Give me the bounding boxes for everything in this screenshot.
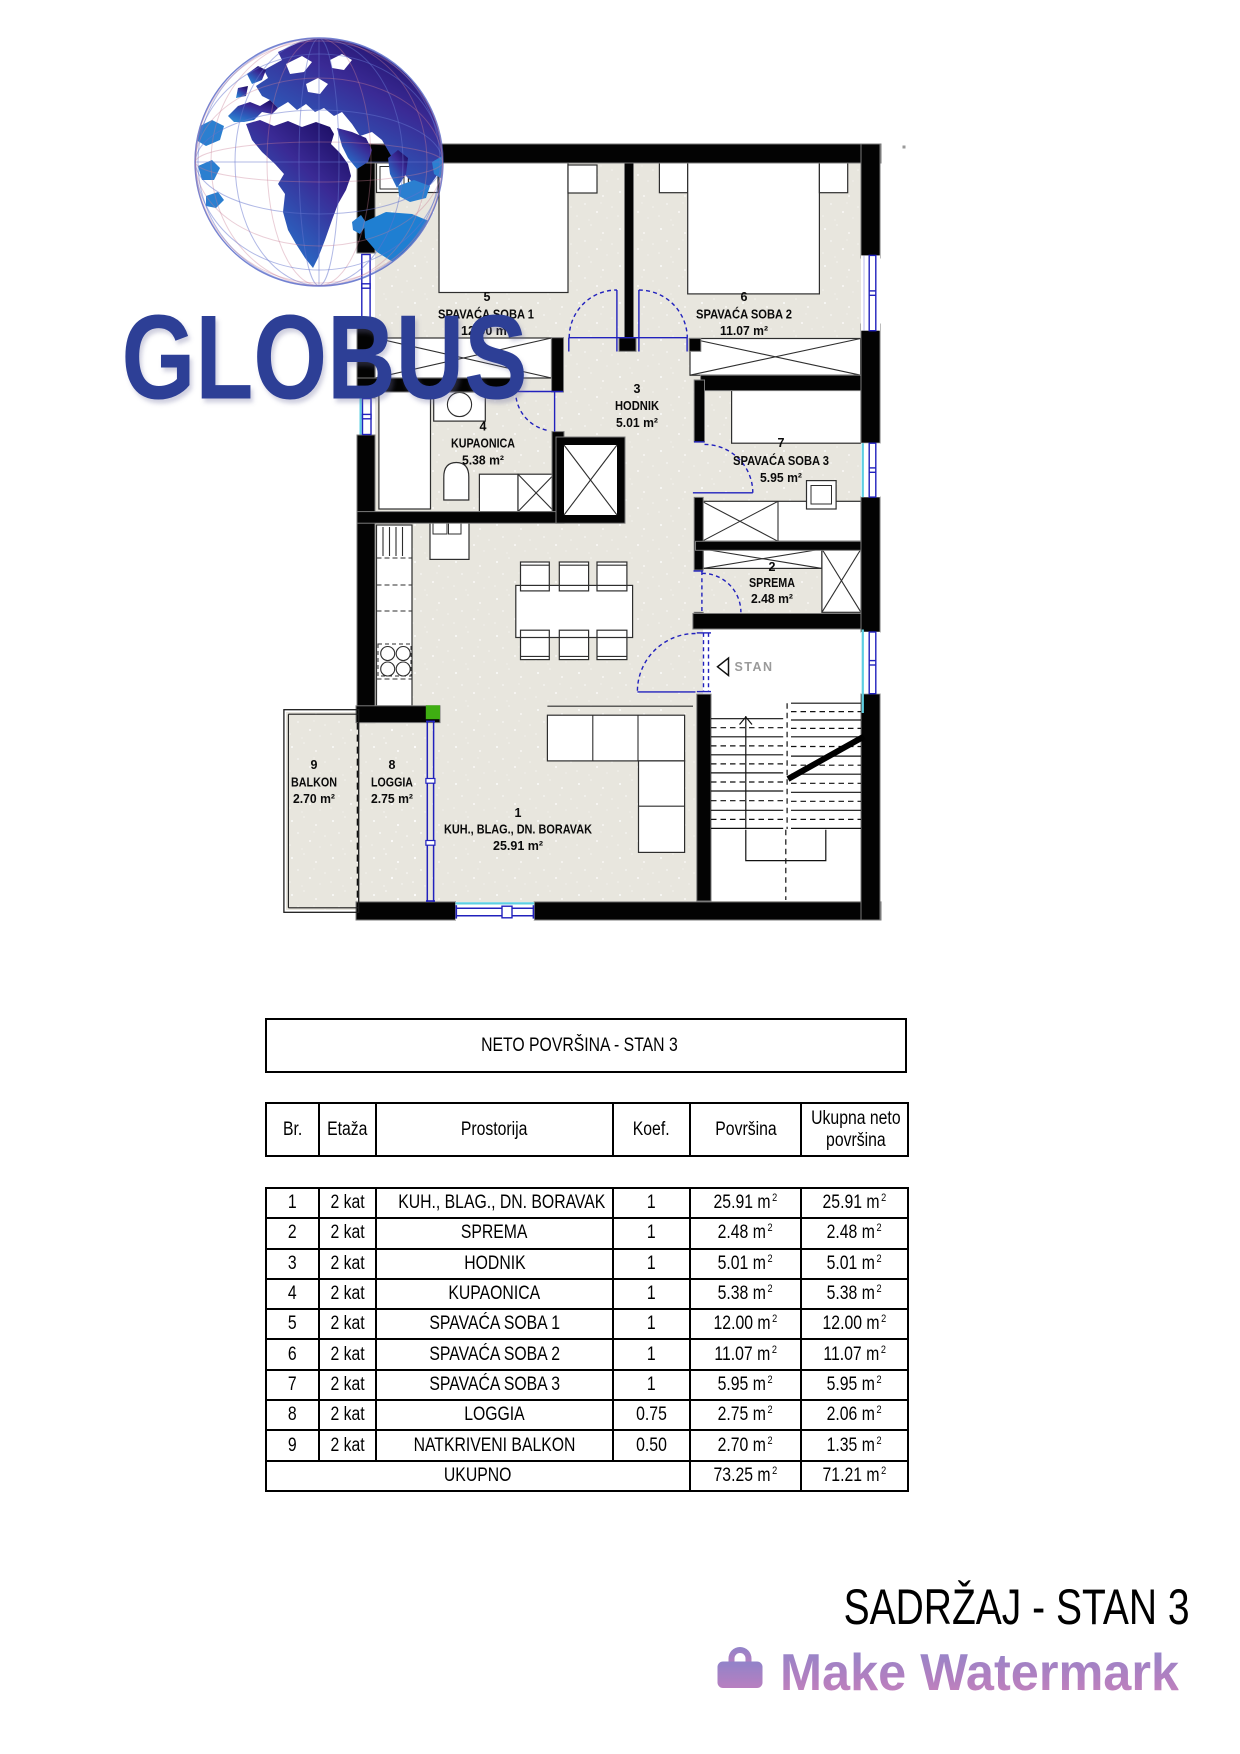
svg-text:6: 6: [741, 290, 748, 304]
svg-text:2.75 m²: 2.75 m²: [371, 792, 413, 806]
svg-text:SPAVAĆA SOBA 2: SPAVAĆA SOBA 2: [696, 307, 792, 322]
svg-text:9: 9: [311, 758, 318, 772]
svg-text:1: 1: [515, 806, 522, 820]
svg-text:5.38 m²: 5.38 m²: [462, 454, 504, 468]
svg-text:LOGGIA: LOGGIA: [371, 776, 413, 790]
svg-text:2.70 m²: 2.70 m²: [293, 792, 335, 806]
svg-text:5.01 m²: 5.01 m²: [616, 416, 658, 430]
svg-text:STAN: STAN: [734, 660, 773, 674]
svg-text:2: 2: [769, 560, 776, 574]
svg-text:5.95 m²: 5.95 m²: [760, 471, 802, 485]
svg-text:8: 8: [389, 758, 396, 772]
svg-text:11.07 m²: 11.07 m²: [720, 324, 768, 338]
svg-text:3: 3: [634, 382, 641, 396]
svg-text:SPREMA: SPREMA: [749, 576, 795, 590]
svg-text:25.91 m²: 25.91 m²: [493, 839, 543, 853]
svg-text:KUH., BLAG., DN. BORAVAK: KUH., BLAG., DN. BORAVAK: [444, 823, 592, 837]
svg-text:SPAVAĆA SOBA 3: SPAVAĆA SOBA 3: [733, 453, 829, 468]
svg-text:GLOBUS: GLOBUS: [122, 290, 528, 424]
svg-text:2.48 m²: 2.48 m²: [751, 592, 793, 606]
svg-text:HODNIK: HODNIK: [615, 399, 659, 413]
svg-text:BALKON: BALKON: [291, 776, 337, 790]
svg-text:KUPAONICA: KUPAONICA: [451, 437, 515, 451]
svg-text:7: 7: [778, 436, 785, 450]
